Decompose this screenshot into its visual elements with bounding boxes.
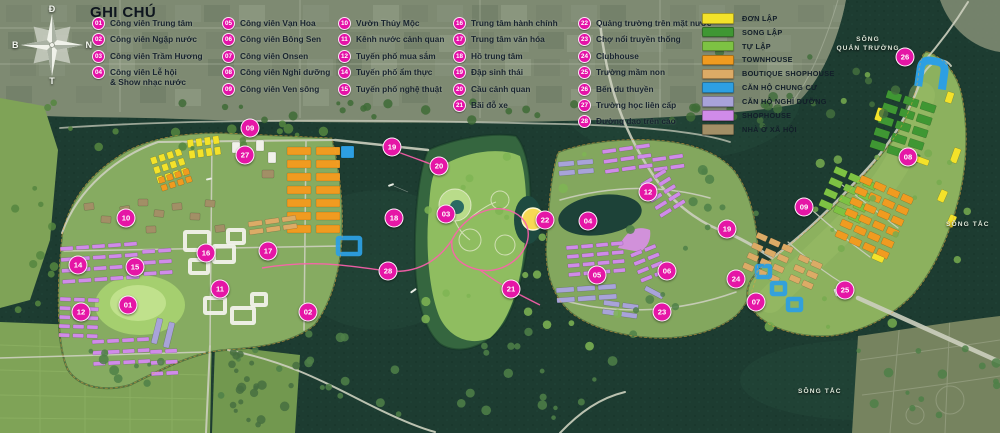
legend-item-number: 20	[453, 83, 466, 96]
map-marker-27: 27	[236, 146, 255, 165]
legend-item-label: Trung tâm hành chính	[471, 17, 558, 28]
legend-item-label: Công viên Lễ hội & Show nhạc nước	[110, 66, 186, 87]
legend-item-number: 12	[338, 50, 351, 63]
legend-item-label: Công viên Onsen	[240, 50, 308, 61]
legend-item-number: 28	[578, 115, 591, 128]
color-swatch	[702, 82, 734, 93]
map-marker-15: 15	[126, 258, 145, 277]
color-legend-row: BOUTIQUE SHOPHOUSE	[702, 69, 835, 80]
legend-item-label: Công viên Ven sông	[240, 83, 319, 94]
legend-item-label: Công viên Vạn Hoa	[240, 17, 316, 28]
map-marker-06: 06	[658, 262, 677, 281]
color-legend-row: TOWNHOUSE	[702, 55, 835, 66]
legend-item: 18Hồ trung tâm	[453, 50, 573, 63]
legend-item-number: 14	[338, 66, 351, 79]
map-marker-12: 12	[72, 303, 91, 322]
color-swatch	[702, 13, 734, 24]
legend-item-label: Đập sinh thái	[471, 66, 523, 77]
river-label-song-tac-bottom: SÔNG TẮC	[798, 388, 842, 395]
compass-star	[12, 4, 92, 86]
color-legend-row: ĐƠN LẬP	[702, 13, 835, 24]
color-legend-row: CĂN HỘ NGHỈ DƯỠNG	[702, 96, 835, 107]
legend-item-label: Trung tâm văn hóa	[471, 33, 545, 44]
map-marker-12: 12	[639, 183, 658, 202]
color-legend-row: SHOPHOUSE	[702, 110, 835, 121]
compass-rose: Đ B N T	[12, 4, 92, 86]
color-swatch	[702, 110, 734, 121]
color-legend-row: TỰ LẬP	[702, 41, 835, 52]
legend-item-number: 24	[578, 50, 591, 63]
color-legend-label: NHÀ Ở XÃ HỘI	[742, 125, 797, 134]
color-legend-row: CĂN HỘ CHUNG CƯ	[702, 82, 835, 93]
legend-item-label: Đường dạo trên cao	[596, 115, 676, 126]
color-swatch	[702, 96, 734, 107]
legend-item-label: Trường mầm non	[596, 66, 665, 77]
map-marker-26: 26	[896, 48, 915, 67]
color-legend-label: BOUTIQUE SHOPHOUSE	[742, 69, 835, 78]
legend-item: 20Cầu cảnh quan	[453, 83, 573, 96]
legend-column: 05Công viên Vạn Hoa06Công viên Bông Sen0…	[222, 17, 334, 99]
map-marker-21: 21	[502, 280, 521, 299]
legend-item-number: 15	[338, 83, 351, 96]
map-marker-25: 25	[836, 281, 855, 300]
map-marker-04: 04	[579, 212, 598, 231]
legend-item-label: Vườn Thủy Mộc	[356, 17, 420, 28]
legend-item: 14Tuyến phố ẩm thực	[338, 66, 450, 79]
river-label-song-quan-truong: SÔNG QUẢN TRƯỜNG	[830, 35, 906, 53]
legend-item: 04Công viên Lễ hội & Show nhạc nước	[92, 66, 220, 87]
map-marker-09: 09	[241, 119, 260, 138]
color-legend: ĐƠN LẬPSONG LẬPTỰ LẬPTOWNHOUSEBOUTIQUE S…	[702, 13, 835, 138]
map-marker-28: 28	[379, 262, 398, 281]
legend-item: 07Công viên Onsen	[222, 50, 334, 63]
legend-item-label: Bến du thuyền	[596, 83, 654, 94]
map-marker-07: 07	[747, 293, 766, 312]
map-marker-09: 09	[795, 198, 814, 217]
color-swatch	[702, 27, 734, 38]
compass-label-left: B	[12, 40, 19, 50]
river-label-song-tac-right: SÔNG TẮC	[946, 221, 990, 228]
legend-item-label: Tuyến phố mua sắm	[356, 50, 436, 61]
legend-item-number: 16	[453, 17, 466, 30]
legend-item: 11Kênh nước cảnh quan	[338, 33, 450, 46]
legend-item-number: 03	[92, 50, 105, 63]
map-marker-20: 20	[430, 157, 449, 176]
legend-item: 10Vườn Thủy Mộc	[338, 17, 450, 30]
legend-item-label: Công viên Ngập nước	[110, 33, 197, 44]
legend-item-number: 26	[578, 83, 591, 96]
legend-item-label: Clubhouse	[596, 50, 639, 61]
legend-item-number: 11	[338, 33, 351, 46]
legend-item: 19Đập sinh thái	[453, 66, 573, 79]
legend-item-number: 02	[92, 33, 105, 46]
legend-item-number: 07	[222, 50, 235, 63]
legend-item-number: 21	[453, 99, 466, 112]
map-marker-19: 19	[718, 220, 737, 239]
legend-item-label: Công viên Trung tâm	[110, 17, 193, 28]
map-marker-10: 10	[117, 209, 136, 228]
color-legend-label: SHOPHOUSE	[742, 111, 791, 120]
legend-item-label: Công viên Trầm Hương	[110, 50, 203, 61]
compass-label-bottom: T	[49, 76, 55, 86]
legend-item: 21Bãi đỗ xe	[453, 99, 573, 112]
legend-item: 08Công viên Nghỉ dưỡng	[222, 66, 334, 79]
legend-item-number: 22	[578, 17, 591, 30]
color-legend-row: NHÀ Ở XÃ HỘI	[702, 124, 835, 135]
map-marker-17: 17	[259, 242, 278, 261]
legend-item: 12Tuyến phố mua sắm	[338, 50, 450, 63]
legend-column: 01Công viên Trung tâm02Công viên Ngập nư…	[92, 17, 220, 91]
legend-item-number: 09	[222, 83, 235, 96]
legend-item: 09Công viên Ven sông	[222, 83, 334, 96]
legend-item: 01Công viên Trung tâm	[92, 17, 220, 30]
map-marker-19: 19	[383, 138, 402, 157]
map-marker-14: 14	[69, 256, 88, 275]
legend-item-number: 06	[222, 33, 235, 46]
legend-item-label: Công viên Bông Sen	[240, 33, 321, 44]
legend-column: 16Trung tâm hành chính17Trung tâm văn hó…	[453, 17, 573, 115]
legend-item: 05Công viên Vạn Hoa	[222, 17, 334, 30]
legend-item-number: 18	[453, 50, 466, 63]
color-legend-label: SONG LẬP	[742, 28, 783, 37]
legend-item-number: 23	[578, 33, 591, 46]
color-swatch	[702, 41, 734, 52]
map-marker-24: 24	[727, 270, 746, 289]
legend-item-label: Hồ trung tâm	[471, 50, 523, 61]
legend-item-label: Chợ nổi truyền thống	[596, 33, 681, 44]
legend-item: 15Tuyến phố nghệ thuật	[338, 83, 450, 96]
map-marker-05: 05	[588, 266, 607, 285]
color-legend-label: CĂN HỘ NGHỈ DƯỠNG	[742, 97, 827, 106]
map-marker-16: 16	[197, 244, 216, 263]
color-legend-label: TỰ LẬP	[742, 42, 771, 51]
color-swatch	[702, 69, 734, 80]
legend-item-number: 01	[92, 17, 105, 30]
legend-item-label: Kênh nước cảnh quan	[356, 33, 444, 44]
legend-item-number: 27	[578, 99, 591, 112]
legend-item-number: 05	[222, 17, 235, 30]
legend-item: 02Công viên Ngập nước	[92, 33, 220, 46]
legend-item-label: Cầu cảnh quan	[471, 83, 530, 94]
legend-item-number: 10	[338, 17, 351, 30]
legend-item-number: 17	[453, 33, 466, 46]
color-legend-label: ĐƠN LẬP	[742, 14, 778, 23]
legend-item-label: Tuyến phố ẩm thực	[356, 66, 432, 77]
legend-item: 17Trung tâm văn hóa	[453, 33, 573, 46]
map-marker-02: 02	[299, 303, 318, 322]
legend-item-number: 04	[92, 66, 105, 79]
legend-item-label: Tuyến phố nghệ thuật	[356, 83, 442, 94]
color-legend-label: CĂN HỘ CHUNG CƯ	[742, 83, 817, 92]
legend-item-number: 08	[222, 66, 235, 79]
masterplan-map: Đ B N T GHI CHÚ 01Công viên Trung tâm02C…	[0, 0, 1000, 433]
legend-item-label: Trường học liên cấp	[596, 99, 676, 110]
color-legend-row: SONG LẬP	[702, 27, 835, 38]
map-marker-18: 18	[385, 209, 404, 228]
map-marker-22: 22	[536, 211, 555, 230]
map-marker-23: 23	[653, 303, 672, 322]
map-marker-11: 11	[211, 280, 230, 299]
map-marker-03: 03	[437, 205, 456, 224]
legend-item: 16Trung tâm hành chính	[453, 17, 573, 30]
color-swatch	[702, 124, 734, 135]
legend-item-label: Bãi đỗ xe	[471, 99, 508, 110]
legend-item-number: 25	[578, 66, 591, 79]
compass-label-top: Đ	[49, 4, 56, 14]
legend-item: 03Công viên Trầm Hương	[92, 50, 220, 63]
legend-item-label: Quảng trường trên mặt nước	[596, 17, 712, 28]
legend-item: 06Công viên Bông Sen	[222, 33, 334, 46]
color-swatch	[702, 55, 734, 66]
legend-column: 10Vườn Thủy Mộc11Kênh nước cảnh quan12Tu…	[338, 17, 450, 99]
map-marker-01: 01	[119, 296, 138, 315]
legend-item-label: Công viên Nghỉ dưỡng	[240, 66, 330, 77]
legend-item-number: 19	[453, 66, 466, 79]
color-legend-label: TOWNHOUSE	[742, 55, 793, 64]
map-marker-08: 08	[899, 148, 918, 167]
